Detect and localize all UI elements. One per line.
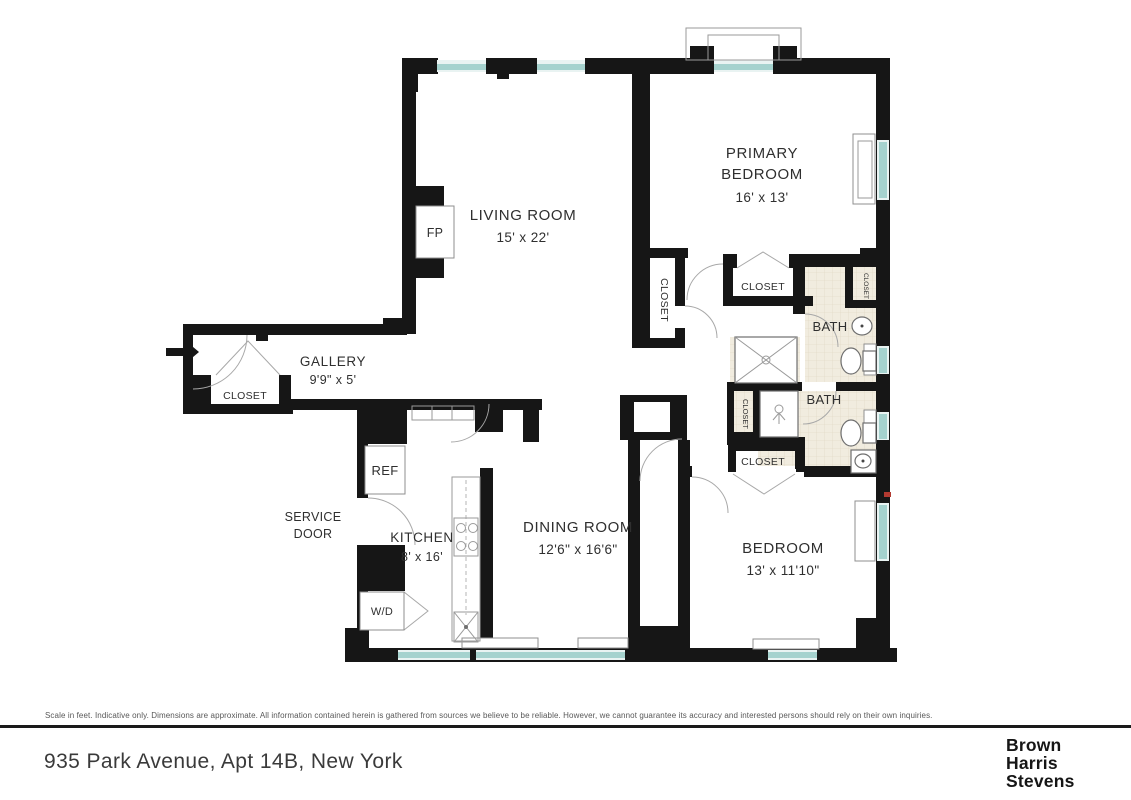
dining-door-arc: [640, 439, 682, 481]
fp-label: FP: [427, 226, 444, 240]
bath1-label: BATH: [813, 319, 848, 334]
gallery-closet-label: CLOSET: [223, 390, 267, 402]
room-dims-dining: 12'6" x 16'6": [538, 542, 617, 557]
gallery-closet-door: [216, 341, 280, 375]
address-text: 935 Park Avenue, Apt 14B, New York: [44, 750, 403, 774]
room-dims-living: 15' x 22': [496, 230, 549, 245]
primary-closet-label: CLOSET: [741, 281, 785, 293]
brand-logo-line1: Brown: [1006, 736, 1075, 754]
ref-label: REF: [372, 463, 399, 478]
room-label-primary-1: PRIMARY: [726, 145, 798, 162]
room-dims-gallery: 9'9" x 5': [310, 373, 357, 387]
bath2-label: BATH: [807, 392, 842, 407]
floorplan-drawing: LIVING ROOM 15' x 22' PRIMARY BEDROOM 16…: [0, 0, 1131, 800]
red-marker: [884, 492, 891, 497]
wd-label: W/D: [371, 606, 393, 618]
bath-closet-label: CLOSET: [862, 273, 869, 299]
toilet-icon: [841, 348, 876, 374]
bedroom-door-arc: [692, 477, 728, 513]
room-label-gallery: GALLERY: [300, 354, 366, 369]
primary-closet-doors: [737, 252, 789, 268]
room-dims-primary: 16' x 13': [735, 190, 788, 205]
hall-closet-door-arc: [685, 306, 717, 338]
toilet-icon-2: [841, 420, 876, 446]
primary-door-arc: [687, 264, 723, 300]
room-dims-bedroom: 13' x 11'10": [746, 563, 819, 578]
room-label-living: LIVING ROOM: [470, 207, 577, 224]
shower-stall-1: [735, 337, 797, 383]
wd-door: [404, 592, 428, 630]
room-label-bedroom: BEDROOM: [742, 540, 824, 557]
floorplan-page: LIVING ROOM 15' x 22' PRIMARY BEDROOM 16…: [0, 0, 1131, 800]
room-label-primary-2: BEDROOM: [721, 166, 803, 183]
brand-logo: Brown Harris Stevens: [1006, 736, 1075, 790]
kitchen-counter: [452, 477, 480, 642]
disclaimer-text: Scale in feet. Indicative only. Dimensio…: [45, 711, 1105, 720]
sink-icon-2: [851, 450, 876, 473]
brand-logo-line3: Stevens: [1006, 772, 1075, 790]
shower-stall-2: [760, 391, 798, 437]
entry-arrow-icon: [166, 341, 199, 363]
hall-closet-label: CLOSET: [658, 278, 670, 322]
bedroom-closet-doors: [733, 474, 795, 494]
wall-notch: [634, 402, 670, 432]
room-label-kitchen: KITCHEN: [390, 530, 453, 545]
service-door-label-2: DOOR: [294, 527, 333, 541]
room-label-dining: DINING ROOM: [523, 519, 633, 536]
mid-closet-label: CLOSET: [741, 399, 750, 429]
footer-divider: [0, 725, 1131, 728]
service-door-label-1: SERVICE: [285, 510, 342, 524]
room-dims-kitchen: 8' x 16': [401, 550, 443, 564]
bedroom-closet-label: CLOSET: [741, 456, 785, 468]
brand-logo-line2: Harris: [1006, 754, 1075, 772]
